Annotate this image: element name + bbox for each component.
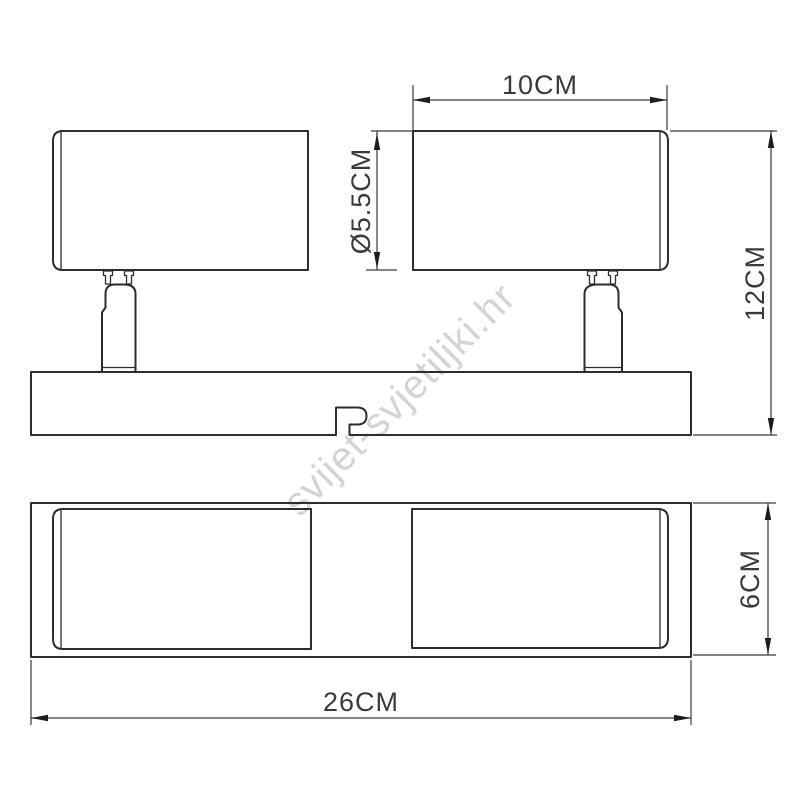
arrowhead-down: [765, 638, 771, 655]
right-shade-bottom-outline: [412, 509, 668, 648]
dim-label-fixture-height: 12CM: [740, 245, 770, 321]
right-stem: [585, 271, 623, 371]
left-stem-pin: [125, 271, 134, 284]
left-shade-outline: [53, 131, 308, 270]
right-stem-cylinder: [585, 285, 623, 372]
arrowhead-up: [768, 131, 774, 148]
dimension-stem-diameter: Ø5.5CM: [346, 131, 412, 270]
dimension-fixture-height: 12CM: [670, 131, 777, 435]
arrowhead-up: [374, 133, 380, 150]
lamp-dimension-drawing: 10CM Ø5.5CM 12CM 6CM: [0, 0, 800, 800]
arrowhead-left: [413, 97, 430, 103]
right-shade-outline: [413, 131, 668, 270]
technical-drawing-page: svijet-svjetiljki.hr: [0, 0, 800, 800]
dimension-shade-width: 10CM: [413, 70, 667, 130]
right-stem-pin: [609, 271, 618, 284]
dimension-base-length: 26CM: [31, 660, 691, 725]
arrowhead-right: [650, 97, 667, 103]
dim-label-stem-diameter: Ø5.5CM: [346, 148, 376, 255]
left-stem-cylinder: [102, 285, 136, 372]
dimension-base-depth: 6CM: [693, 503, 776, 655]
left-stem: [102, 271, 136, 371]
dim-label-shade-width: 10CM: [502, 70, 578, 100]
arrowhead-up: [765, 503, 771, 520]
arrowhead-down: [768, 418, 774, 435]
arrowhead-right: [674, 715, 691, 721]
base-plate-outline: [31, 503, 691, 657]
bottom-view: [31, 503, 691, 657]
base-bar-outline: [31, 372, 691, 435]
arrowhead-left: [31, 715, 48, 721]
left-shade-bottom-outline: [53, 509, 311, 649]
right-stem-pin: [588, 271, 597, 284]
dim-label-base-depth: 6CM: [735, 549, 765, 609]
left-stem-pin: [104, 271, 113, 284]
dim-label-base-length: 26CM: [323, 687, 399, 717]
